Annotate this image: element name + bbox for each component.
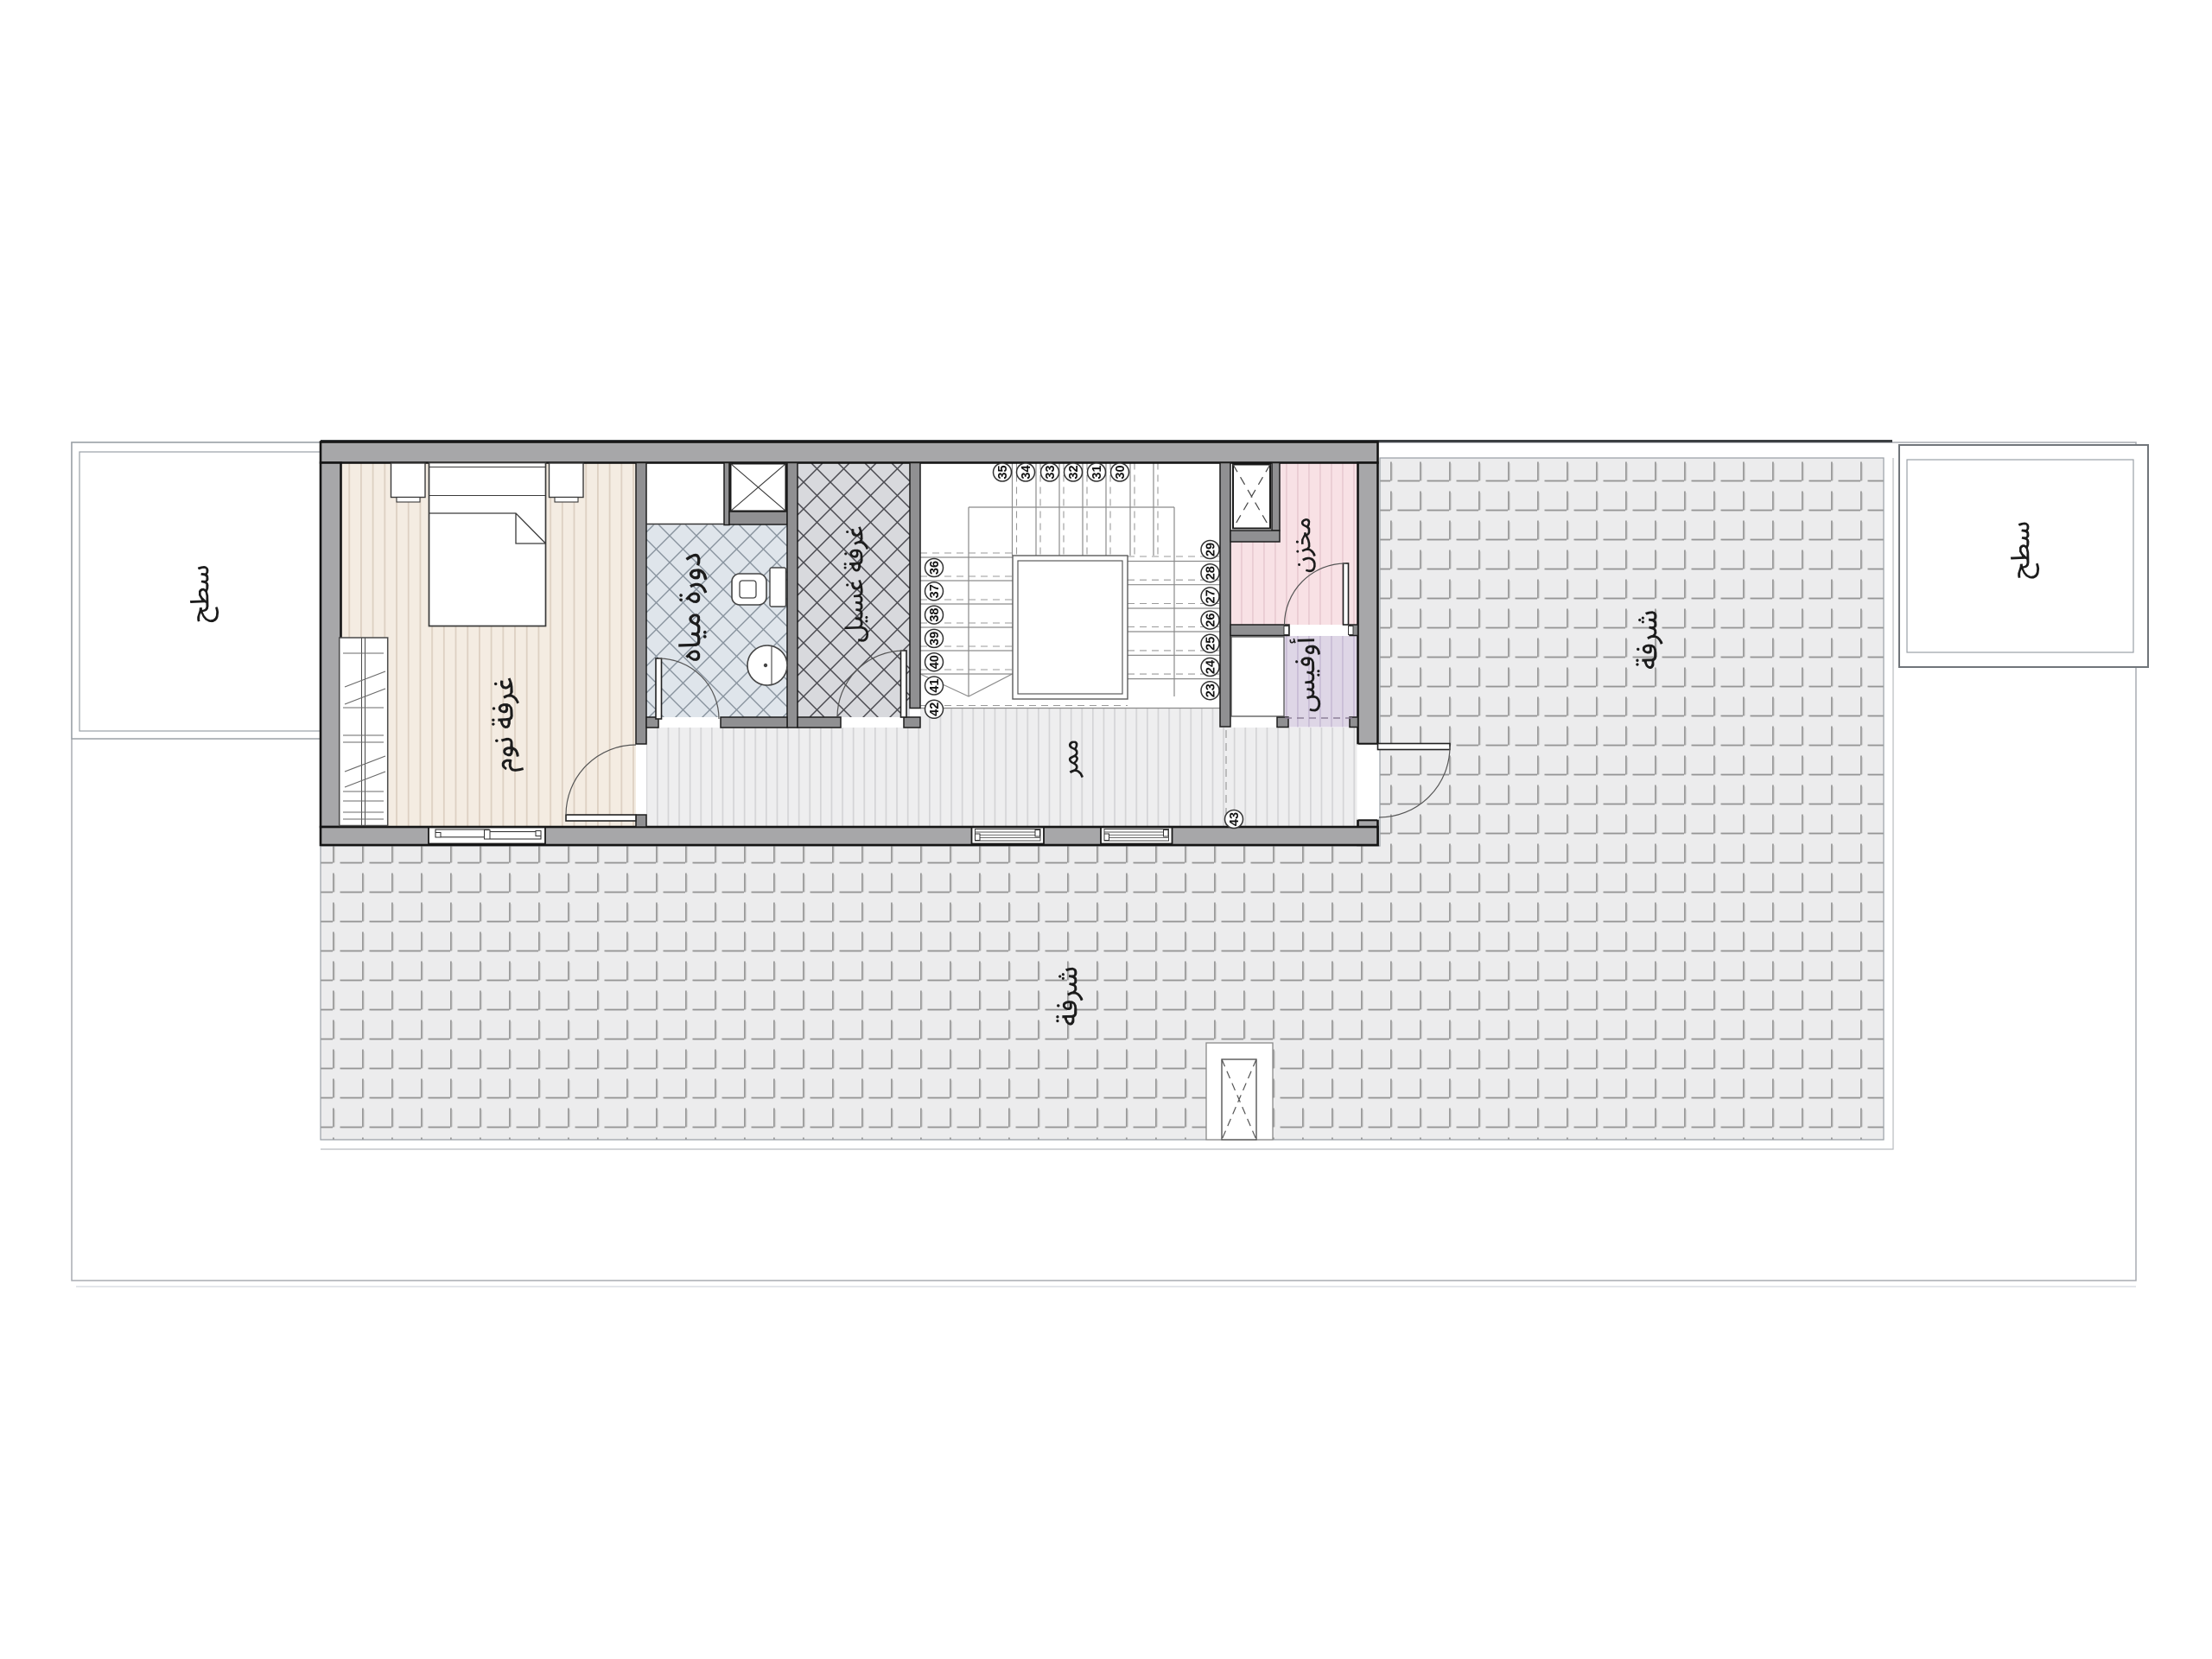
svg-text:26: 26: [1205, 613, 1218, 627]
svg-text:32: 32: [1067, 465, 1081, 479]
svg-text:27: 27: [1205, 589, 1218, 603]
svg-text:43: 43: [1228, 812, 1242, 826]
svg-text:38: 38: [928, 608, 942, 622]
svg-text:28: 28: [1205, 566, 1218, 580]
svg-text:31: 31: [1090, 465, 1104, 479]
svg-text:33: 33: [1044, 465, 1058, 479]
svg-text:39: 39: [928, 632, 942, 645]
svg-text:23: 23: [1205, 683, 1218, 697]
svg-text:37: 37: [928, 584, 942, 598]
svg-text:42: 42: [928, 702, 942, 716]
svg-text:34: 34: [1020, 465, 1033, 479]
svg-text:41: 41: [928, 678, 942, 692]
svg-text:30: 30: [1114, 465, 1128, 479]
svg-text:24: 24: [1205, 660, 1218, 674]
svg-text:35: 35: [996, 465, 1010, 479]
svg-text:25: 25: [1205, 637, 1218, 651]
svg-text:36: 36: [928, 561, 942, 575]
svg-text:29: 29: [1205, 543, 1218, 556]
svg-text:40: 40: [928, 655, 942, 669]
